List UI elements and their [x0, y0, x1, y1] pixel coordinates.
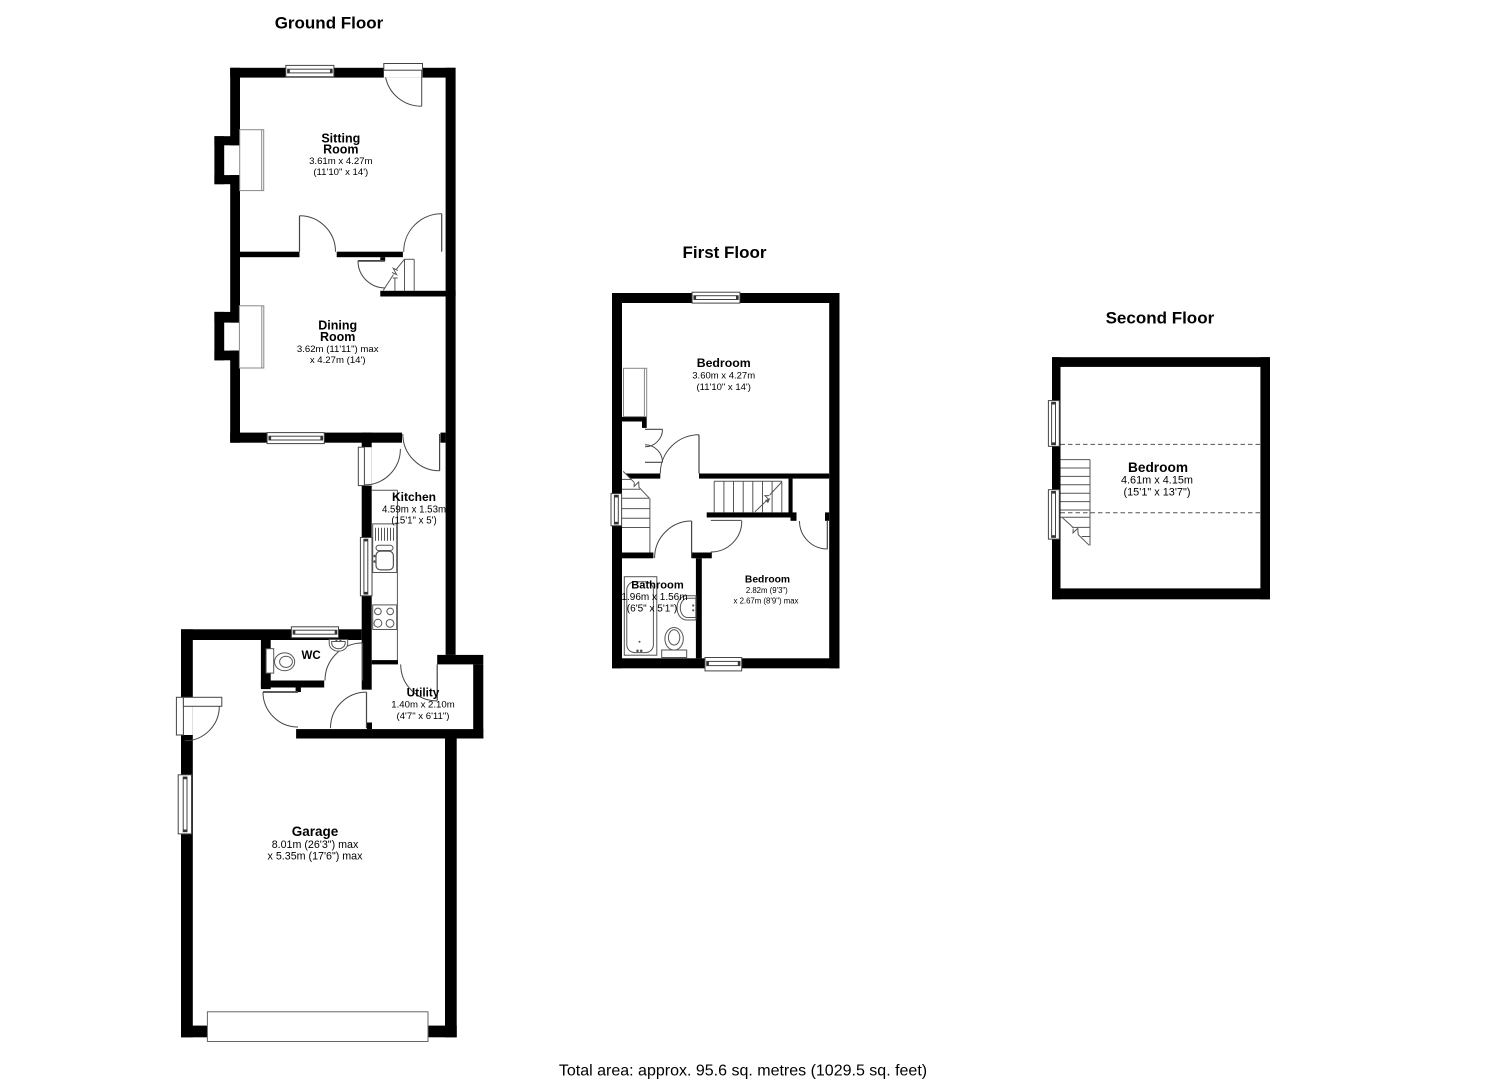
svg-text:3.60m x 4.27m: 3.60m x 4.27m	[692, 371, 755, 382]
svg-text:Kitchen: Kitchen	[392, 490, 436, 504]
svg-text:3.62m (11'11") max: 3.62m (11'11") max	[297, 344, 379, 355]
svg-text:2.82m (9'3"): 2.82m (9'3")	[746, 586, 788, 595]
svg-text:First Floor: First Floor	[682, 243, 766, 262]
svg-text:Ground Floor: Ground Floor	[275, 14, 384, 33]
svg-text:Total area: approx. 95.6 sq. m: Total area: approx. 95.6 sq. metres (102…	[559, 1063, 927, 1080]
svg-text:Room: Room	[323, 142, 358, 156]
svg-text:4.61m x 4.15m: 4.61m x 4.15m	[1121, 475, 1193, 487]
svg-text:Utility: Utility	[407, 686, 440, 699]
svg-text:Room: Room	[320, 330, 355, 344]
svg-text:8.01m (26'3") max: 8.01m (26'3") max	[272, 839, 359, 851]
svg-text:Bedroom: Bedroom	[745, 575, 790, 586]
svg-text:4.59m x 1.53m: 4.59m x 1.53m	[382, 504, 446, 515]
svg-text:x 4.27m (14'): x 4.27m (14')	[310, 355, 366, 366]
svg-text:Bathroom: Bathroom	[631, 580, 684, 592]
svg-text:3.61m x 4.27m: 3.61m x 4.27m	[309, 156, 372, 167]
svg-text:(6'5" x 5'1"): (6'5" x 5'1")	[627, 603, 677, 614]
svg-text:1.96m x 1.56m: 1.96m x 1.56m	[621, 592, 687, 603]
svg-text:Bedroom: Bedroom	[1128, 460, 1188, 475]
svg-text:(11'10" x 14'): (11'10" x 14')	[697, 382, 751, 393]
svg-text:Second Floor: Second Floor	[1106, 309, 1215, 328]
svg-text:Garage: Garage	[292, 824, 339, 839]
svg-text:1.40m x 2.10m: 1.40m x 2.10m	[391, 700, 454, 711]
svg-text:WC: WC	[302, 650, 321, 662]
svg-text:(4'7" x 6'11"): (4'7" x 6'11")	[397, 711, 450, 722]
svg-text:x 5.35m (17'6") max: x 5.35m (17'6") max	[268, 851, 364, 863]
svg-text:(15'1" x 13'7"): (15'1" x 13'7")	[1124, 486, 1191, 498]
svg-text:(11'10" x 14'): (11'10" x 14')	[313, 167, 368, 178]
svg-text:x 2.67m (8'9") max: x 2.67m (8'9") max	[734, 596, 799, 605]
svg-text:(15'1" x 5'): (15'1" x 5')	[391, 515, 436, 526]
svg-text:Bedroom: Bedroom	[697, 356, 751, 370]
